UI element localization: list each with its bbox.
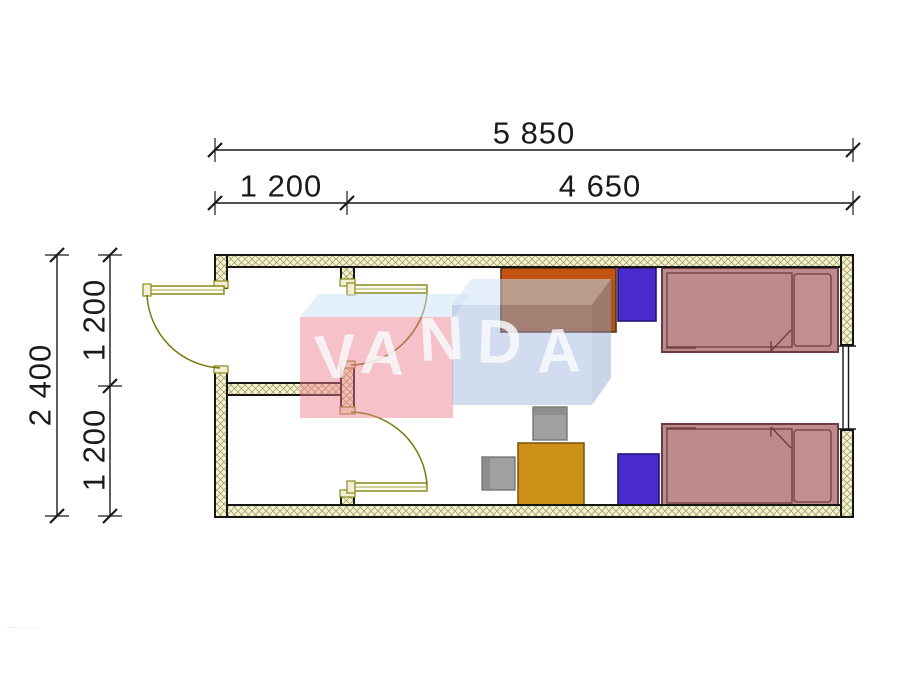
watermark-letter-a2: A (535, 320, 582, 384)
watermark-letter-a1: A (358, 322, 406, 386)
watermark-blue-block-top-face (452, 279, 611, 305)
floor-plan-drawing: 5 850 1 200 4 650 2 400 1 200 1 200 V A … (0, 0, 924, 700)
watermark-letter-v: V (313, 326, 359, 391)
watermark-letter-n: N (417, 308, 465, 372)
vanda-watermark: V A N D A (0, 0, 924, 700)
fine-print-text: ·········· ···· ··· ·· ·· (3, 626, 39, 630)
watermark-letter-d: D (476, 311, 523, 375)
